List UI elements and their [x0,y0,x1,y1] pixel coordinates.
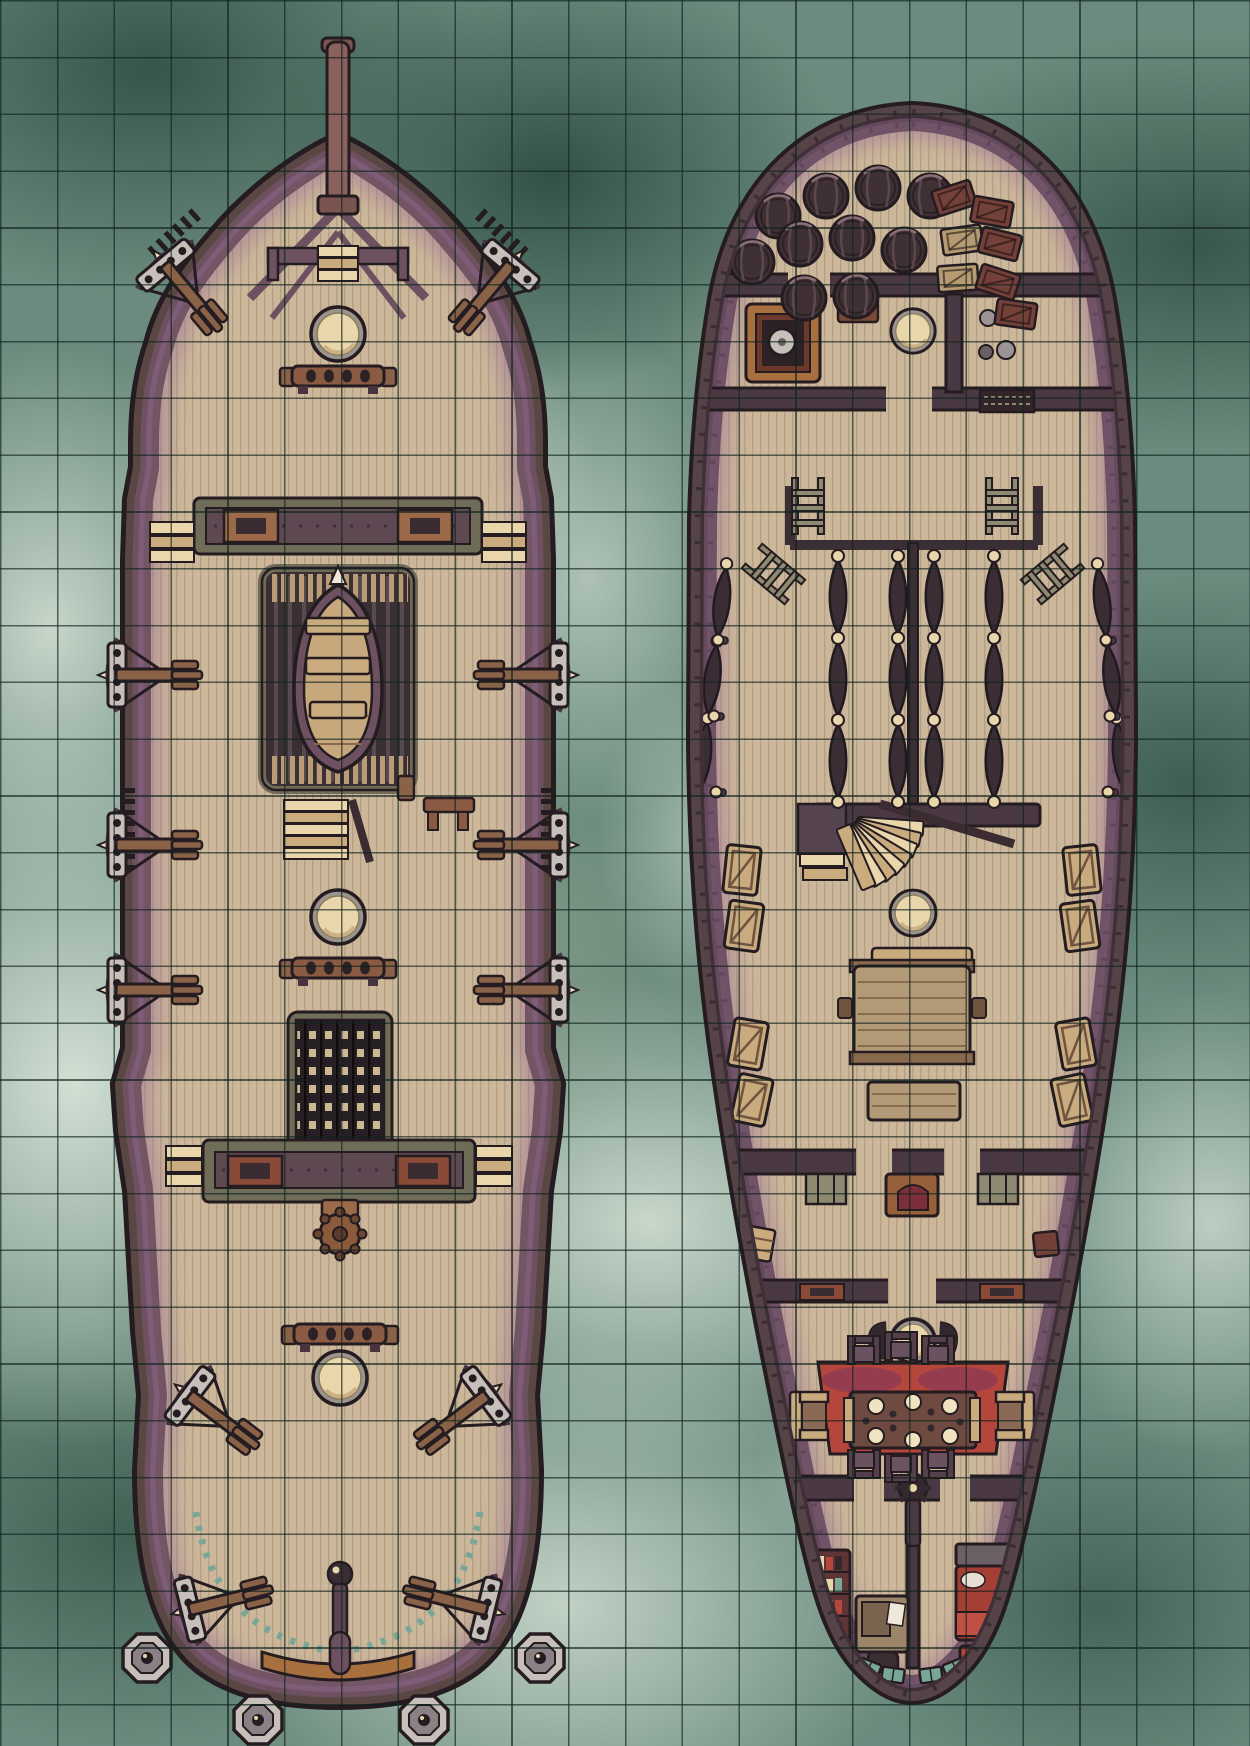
ships-wheel [314,1200,367,1261]
chair-icon [885,1332,917,1360]
barrel-icon [856,166,900,210]
bow-stairs [318,246,358,281]
barrel-icon [830,216,874,260]
ship-battle-map [0,0,1250,1746]
barrel-icon [778,222,822,266]
lantern-icon [123,1634,171,1682]
mast-icon [311,890,365,944]
guncrate-icon [727,1017,769,1070]
mast-icon [890,890,936,936]
forecastle-bulkhead [150,498,526,562]
guncrate-icon [1055,1017,1097,1070]
barrel-icon [782,276,826,320]
lantern-icon [400,1696,448,1744]
hammocks-icon [926,550,943,808]
lantern-icon [516,1634,564,1682]
hammocks-icon [830,550,847,808]
chair-icon [922,1336,954,1364]
guncrate-icon [1063,844,1102,895]
mess-bench [868,1082,960,1120]
chair-icon [885,1454,917,1482]
guncrate-icon [724,900,764,952]
chair-icon [922,1450,954,1478]
lantern-icon [234,1696,282,1744]
mast-icon [313,1351,367,1405]
guncrate-icon [1060,900,1100,952]
vent-grate [980,390,1034,412]
quarterdeck-bulkhead [166,1140,512,1202]
armchair-right [996,1392,1034,1440]
crate-icon [937,264,979,293]
mess-table [838,948,986,1064]
cargo-hatch-grate [288,1012,392,1152]
crate-icon [970,196,1014,229]
weather-deck-ship [98,38,578,1744]
barrel-icon [834,274,878,318]
mast-icon [891,309,935,353]
ships-artwork [0,0,1250,1746]
storage-box [1033,1231,1059,1257]
lower-deck-ship [690,118,1135,1688]
barrel-icon [804,174,848,218]
armchair-left [790,1392,828,1440]
chair-icon [848,1336,880,1364]
mast-icon [311,307,365,361]
crate-icon [994,298,1037,329]
arched-cabinet [886,1174,938,1216]
hammocks-icon [986,550,1003,808]
chair-icon [848,1450,880,1478]
guncrate-icon [723,844,762,895]
hammocks-icon [890,550,907,808]
barrel-icon [882,228,926,272]
dining-table [844,1392,980,1448]
